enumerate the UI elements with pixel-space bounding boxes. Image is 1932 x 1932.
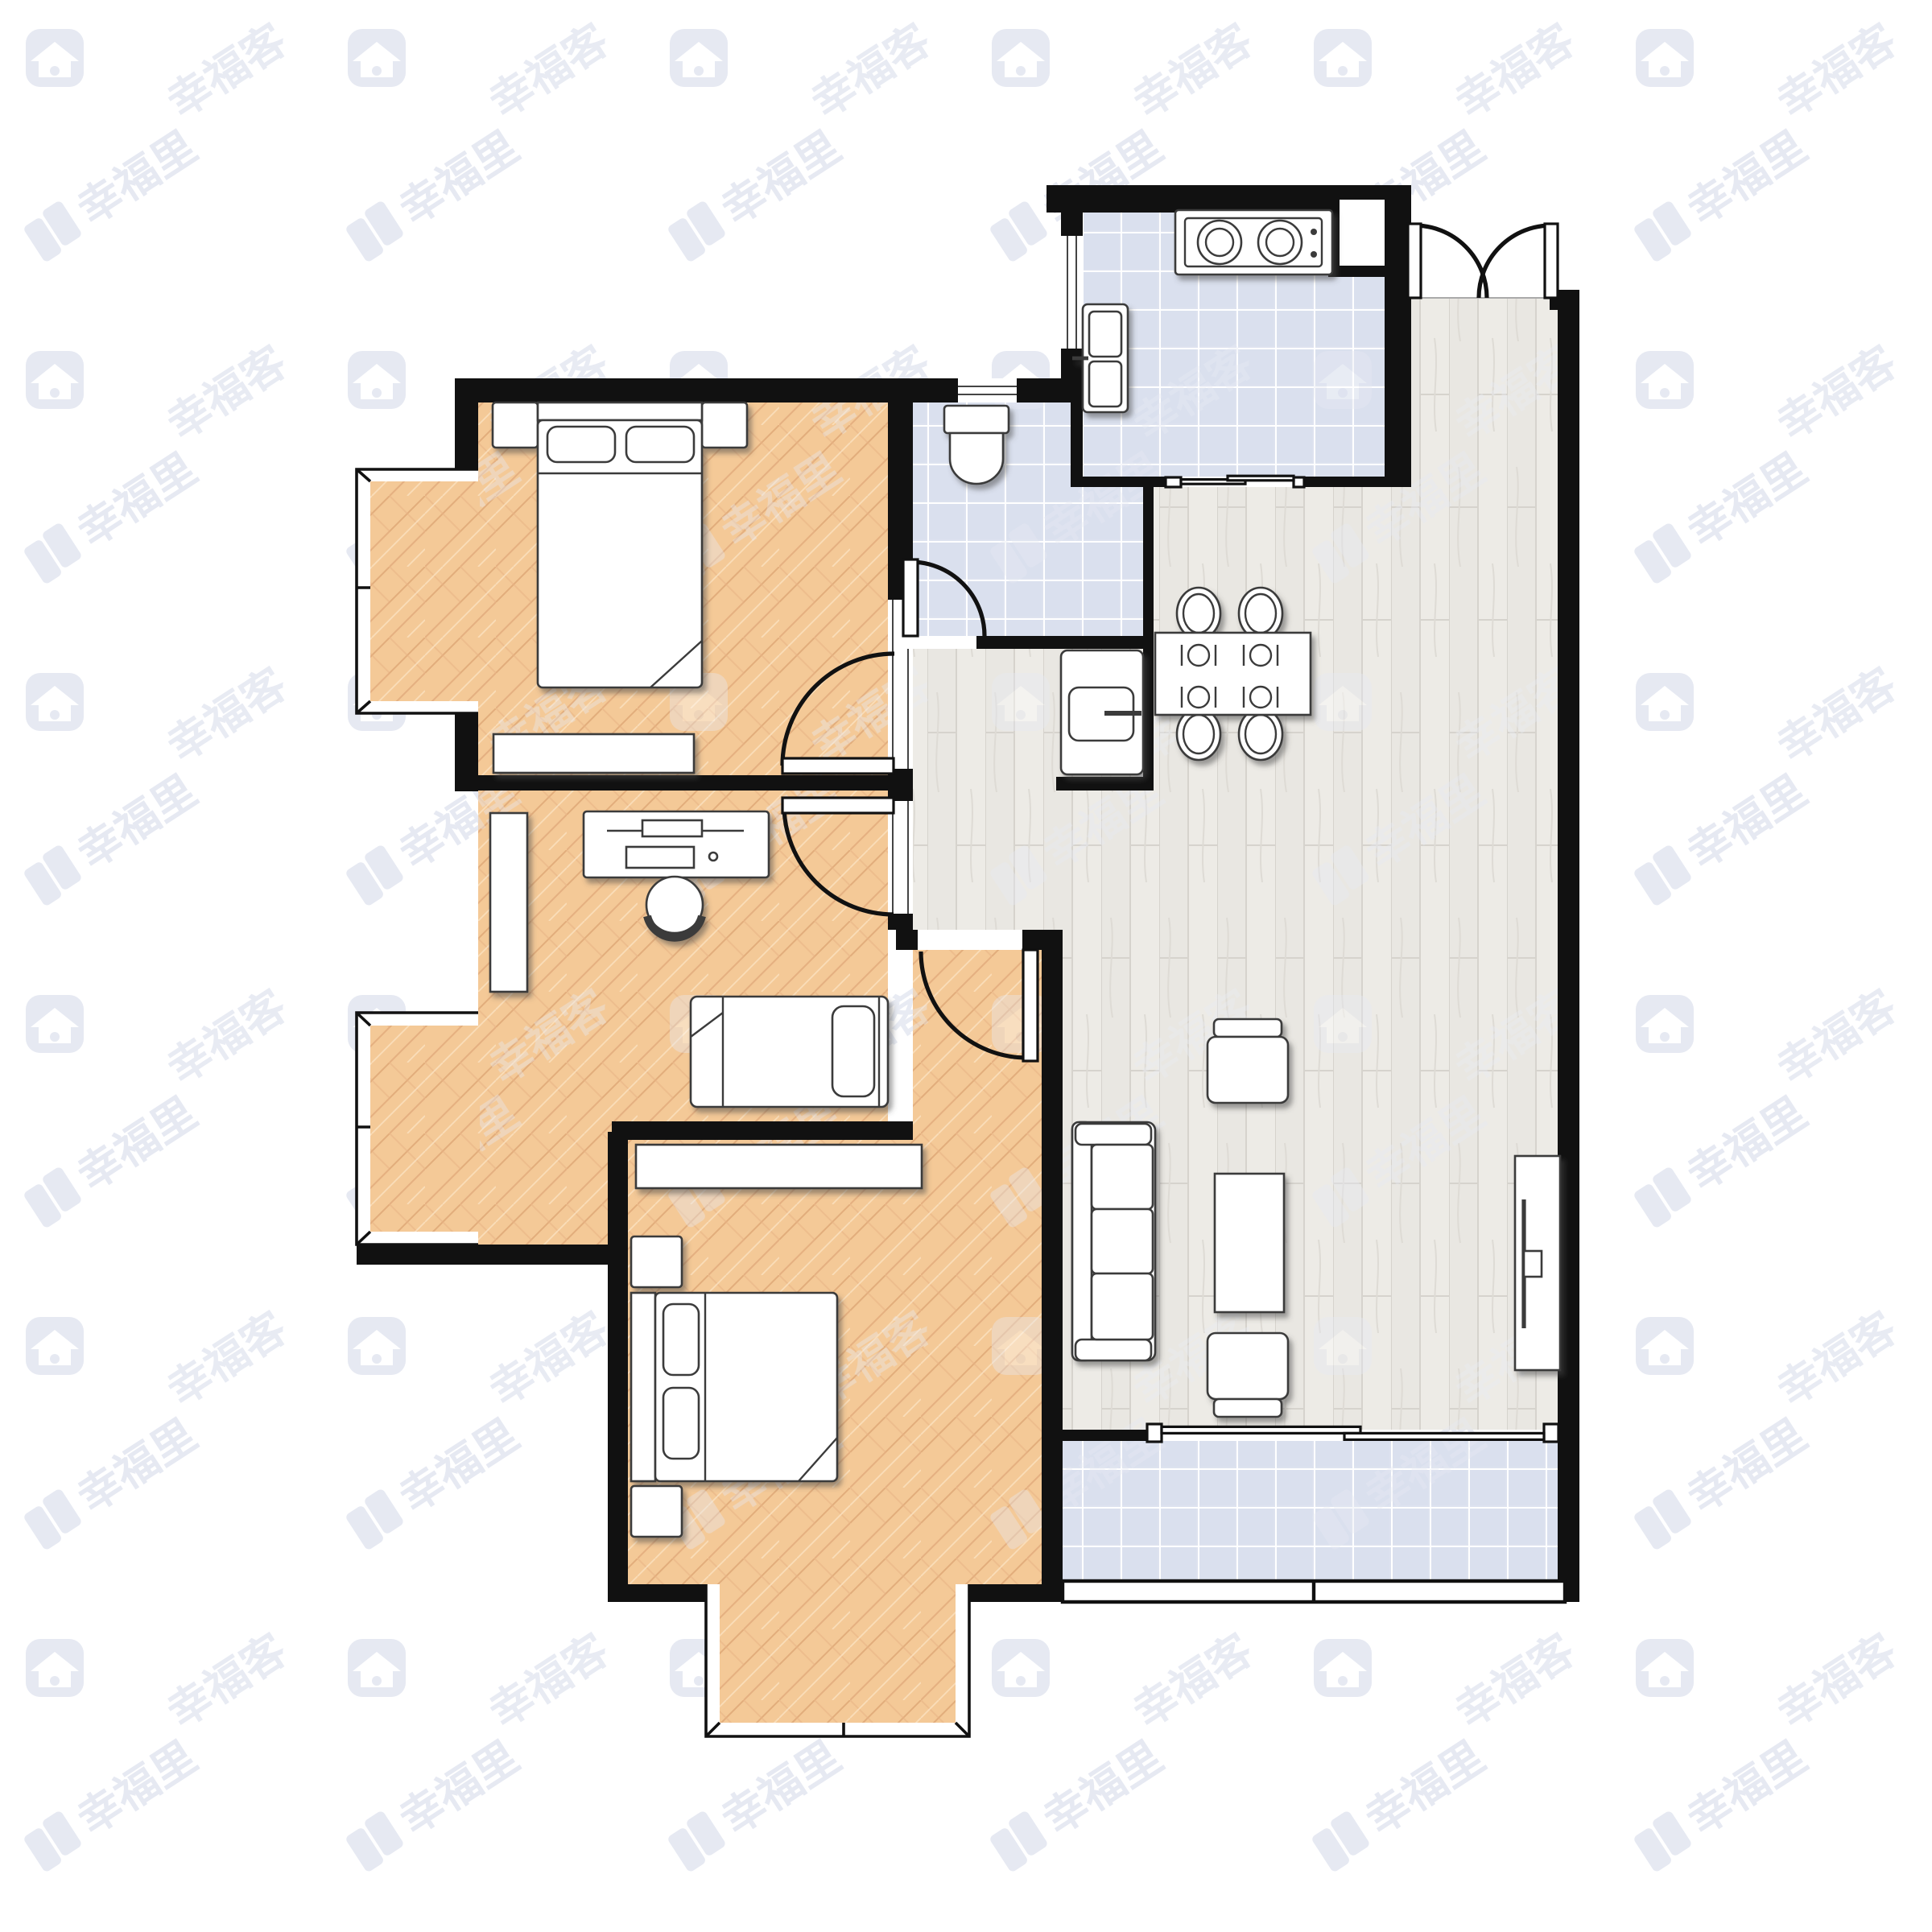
doorway-bathroom	[904, 636, 976, 649]
nightstand	[631, 1486, 682, 1537]
sink-basin	[1089, 361, 1121, 407]
bay-window-bedroom-top-left	[357, 469, 480, 713]
bathroom-window	[958, 378, 1017, 402]
armchair-back	[1214, 1019, 1282, 1037]
dining-table	[1155, 633, 1311, 715]
sofa-armrest	[1075, 1340, 1151, 1360]
mouse	[709, 852, 717, 861]
bay-window-bedroom-middle-left	[357, 1013, 480, 1245]
wardrobe	[493, 734, 694, 773]
knob	[1311, 229, 1317, 235]
nightstand	[493, 402, 538, 448]
toilet-bowl	[950, 433, 1003, 484]
armchair-bottom	[1207, 1333, 1288, 1417]
burner	[1198, 221, 1241, 264]
kitchen-duct-notch	[1340, 200, 1385, 266]
toilet	[944, 406, 1009, 484]
knob	[1311, 251, 1317, 258]
gas-stove	[1175, 210, 1332, 275]
pillow	[832, 1006, 874, 1096]
monitor-base	[642, 820, 702, 836]
sofa	[1072, 1122, 1155, 1360]
sofa-cushion	[1092, 1145, 1153, 1209]
sofa-armrest	[1075, 1124, 1151, 1145]
nightstand	[631, 1236, 682, 1287]
tv-bracket	[1524, 1251, 1542, 1277]
headboard	[538, 402, 702, 420]
single-bed	[691, 997, 888, 1107]
long-wardrobe	[636, 1145, 922, 1188]
toilet-tank	[944, 406, 1009, 433]
doorway-bedroom-bottom	[918, 930, 1022, 950]
sofa-cushion	[1092, 1274, 1153, 1340]
tv-stand	[1515, 1156, 1560, 1370]
bay-window-bedroom-bottom	[706, 1584, 969, 1736]
pillow	[663, 1304, 699, 1375]
headboard	[631, 1293, 655, 1481]
washing-machine	[1061, 650, 1143, 774]
sofa-back	[1072, 1122, 1092, 1360]
kitchen-window	[1061, 236, 1083, 349]
balcony-railing	[1063, 1581, 1565, 1602]
sink-basin	[1089, 312, 1121, 357]
pillow	[626, 427, 694, 462]
nightstand	[702, 402, 747, 448]
sofa-cushion	[1092, 1209, 1153, 1274]
pillow	[663, 1388, 699, 1459]
doorway-bedroom-middle-left	[888, 801, 913, 914]
floor-plan-svg: 幸福里 幸福客	[0, 0, 1932, 1932]
armchair-top	[1207, 1019, 1288, 1103]
coffee-table	[1215, 1174, 1284, 1312]
armchair-back	[1214, 1399, 1282, 1417]
keyboard	[626, 847, 694, 868]
tall-wardrobe	[490, 813, 527, 992]
pillow	[547, 427, 615, 462]
floor-plan-image: 幸福里 幸福客	[0, 0, 1932, 1932]
burner	[1258, 221, 1302, 264]
